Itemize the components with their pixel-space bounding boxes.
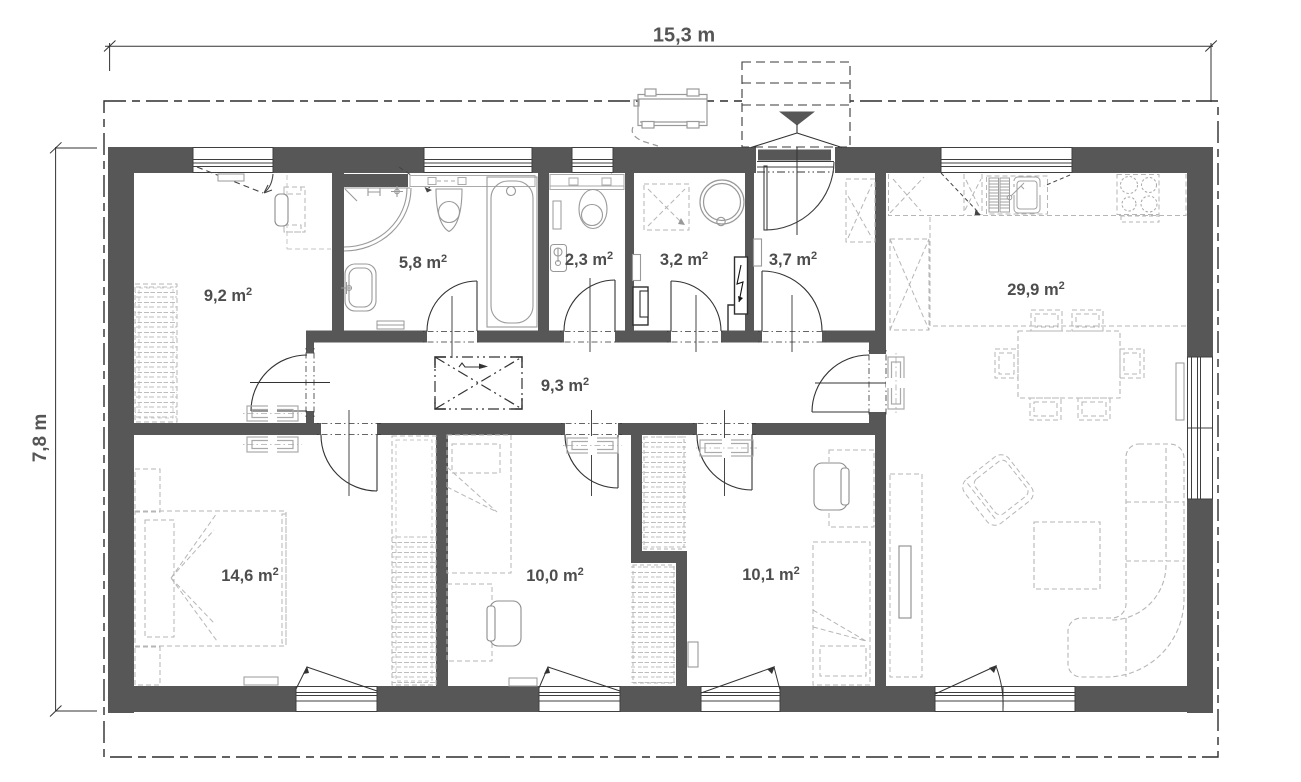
svg-text:14,6 m2: 14,6 m2 bbox=[221, 566, 279, 585]
svg-text:3,7 m2: 3,7 m2 bbox=[769, 250, 817, 269]
svg-text:10,1 m2: 10,1 m2 bbox=[742, 565, 800, 584]
svg-text:3,2 m2: 3,2 m2 bbox=[660, 250, 708, 269]
svg-text:29,9 m2: 29,9 m2 bbox=[1007, 280, 1065, 299]
svg-text:5,8 m2: 5,8 m2 bbox=[399, 253, 447, 272]
svg-text:15,3 m: 15,3 m bbox=[653, 25, 715, 47]
svg-text:9,2 m2: 9,2 m2 bbox=[204, 286, 252, 305]
svg-text:2,3 m2: 2,3 m2 bbox=[565, 250, 613, 269]
svg-text:10,0 m2: 10,0 m2 bbox=[526, 566, 584, 585]
svg-text:9,3 m2: 9,3 m2 bbox=[541, 376, 589, 395]
svg-text:7,8 m: 7,8 m bbox=[30, 414, 51, 463]
